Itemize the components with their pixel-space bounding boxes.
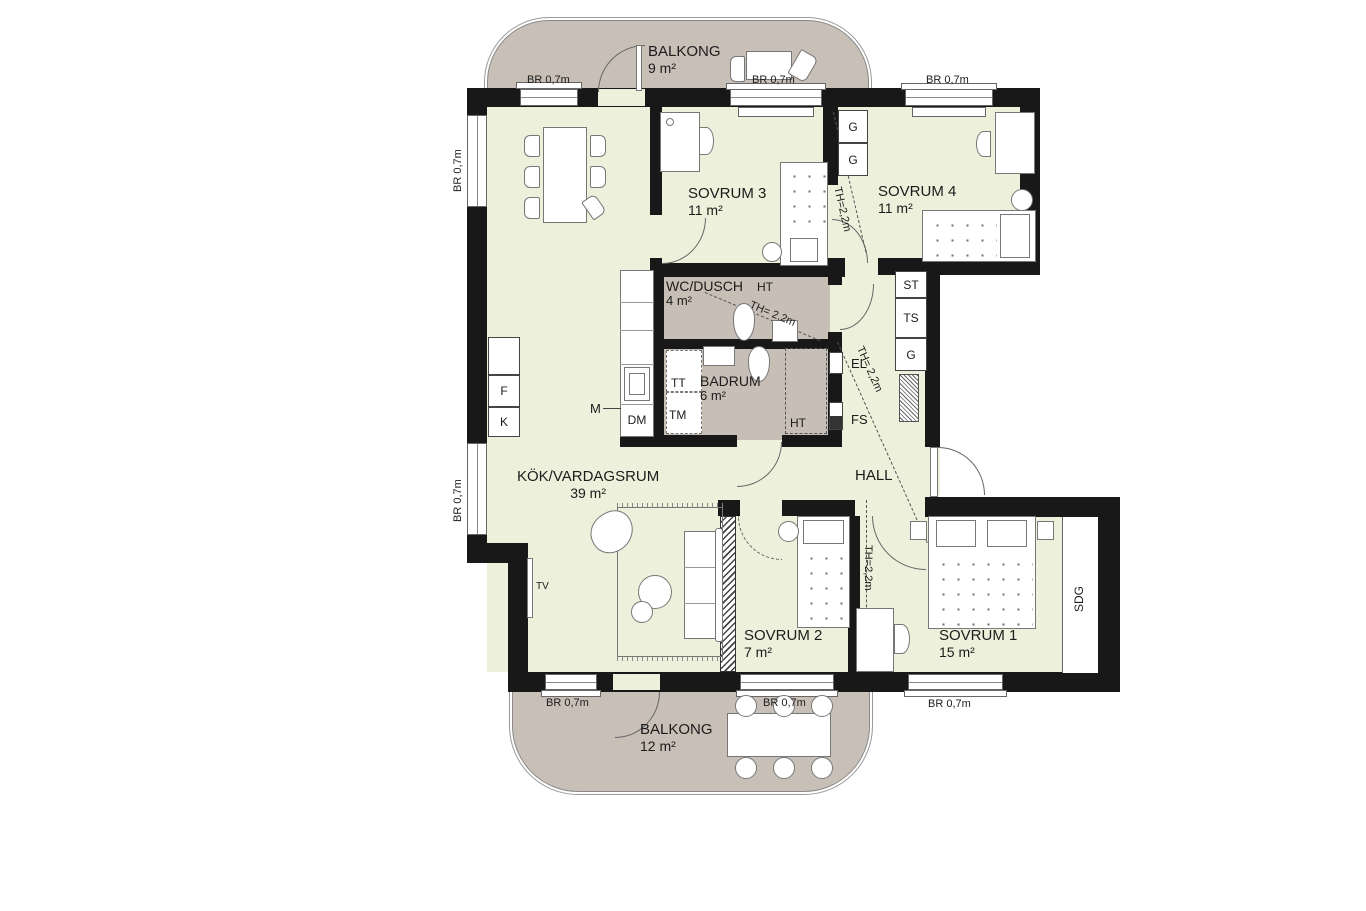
room-name: BALKONG [640,722,713,739]
balcony-door-opening [613,674,660,690]
wardrobe-label: G [906,348,915,362]
window-height-label: BR 0,7m [752,75,795,86]
room-name: SOVRUM 3 [688,186,766,203]
room-name: BALKONG [648,44,721,61]
desk-chair [976,131,991,157]
door-height-label: TH=2,2m [862,545,873,591]
chair [735,757,757,779]
chair [811,757,833,779]
chair [735,695,757,717]
window-inner-sill [738,107,814,117]
bed-foot [790,238,818,262]
ht-label: HT [757,281,773,293]
desk [856,608,894,672]
window-inner-sill [912,107,986,117]
room-name: SOVRUM 2 [744,628,822,645]
desk-chair [894,624,910,654]
freezer-label: K [500,415,508,429]
tv-label: TV [536,582,549,592]
dryer-label: TM [669,409,686,421]
electrical-cabinet [829,352,843,374]
el-label: EL [851,357,867,370]
chair [590,166,606,188]
bed-pillow [987,520,1027,547]
nightstand [910,521,927,540]
window-height-label: BR 0,7m [928,699,971,710]
window-sill [904,690,1007,697]
room-area: 39 m² [517,486,659,501]
microwave-label: M [590,402,601,415]
dishwasher: DM [621,406,653,434]
room-label-balkong-bottom: BALKONG 12 m² [640,722,713,754]
wardrobe: G [838,110,868,143]
window [740,674,834,690]
dishwasher-label: DM [628,413,647,427]
wall [782,500,855,516]
window [730,89,822,106]
basket [778,521,799,542]
room-label-hall: HALL [855,468,893,485]
chair [524,135,540,157]
drying-cabinet: TS [895,298,927,338]
cleaning-cabinet: ST [895,271,927,298]
room-area: 9 m² [648,61,721,76]
counter-divider [620,364,654,365]
room-area: 4 m² [666,294,743,308]
mattress [931,552,1033,626]
counter-divider [620,330,654,331]
window-height-label: BR 0,7m [546,698,589,709]
rug-fringe [617,657,723,661]
room-label-sovrum4: SOVRUM 4 11 m² [878,184,956,216]
window [905,89,993,106]
kitchen-sink-basin [629,373,645,395]
wall [925,275,940,447]
bed-pillow [1000,214,1030,258]
chair [524,166,540,188]
room-area: 7 m² [744,645,822,660]
fridge-label: F [500,384,507,398]
washer-label: TT [671,377,686,389]
room-area: 11 m² [688,203,766,218]
bed-pillow [936,520,976,547]
desk [995,112,1035,174]
desk-chair [699,127,714,155]
chair [590,135,606,157]
room-label-sovrum1: SOVRUM 1 15 m² [939,628,1017,660]
mattress [799,546,848,626]
counter-divider [620,302,654,303]
cabinet-label: TS [903,311,918,325]
freezer: K [488,407,520,437]
side-table [631,601,653,623]
window-sill [541,690,601,697]
room-label-balkong-top: BALKONG 9 m² [648,44,721,76]
wall [925,497,1120,517]
sofa [684,531,716,639]
window [545,674,597,690]
room-name: BADRUM [700,374,761,389]
distribution-box [829,402,843,430]
door-leaf [636,45,642,91]
basket [1011,189,1033,211]
wall [1098,517,1120,672]
mattress [925,213,997,259]
bathroom-sink [703,346,735,366]
window [908,674,1003,690]
window-height-label: BR 0,7m [926,75,969,86]
room-area: 6 m² [700,389,761,403]
room-area: 12 m² [640,739,713,754]
window-height-label: BR 0,7m [453,479,464,522]
chair [524,197,540,219]
room-label-sovrum3: SOVRUM 3 11 m² [688,186,766,218]
chair [773,757,795,779]
entrance-door-leaf [930,447,938,497]
room-name: KÖK/VARDAGSRUM [517,469,659,486]
window-height-label: BR 0,7m [763,698,806,709]
counter-divider [620,404,654,405]
desk-lamp [666,118,674,126]
window [467,115,487,207]
wardrobe: G [838,143,868,176]
balcony-table [727,713,831,757]
room-name: WC/DUSCH [666,279,743,294]
nightstand [1037,521,1054,540]
door-arc-entrance [938,447,985,495]
window [467,443,487,535]
wardrobe-label: G [848,120,857,134]
room-label-wc: WC/DUSCH 4 m² [666,279,743,309]
radiator [899,374,919,422]
room-label-kok: KÖK/VARDAGSRUM 39 m² [517,469,659,501]
bed-pillow [803,520,844,544]
floor-plan: DM M F K TV G G [0,0,1366,911]
wall [508,563,528,675]
wall [467,543,528,563]
window [520,89,578,106]
room-label-sovrum2: SOVRUM 2 7 m² [744,628,822,660]
dining-table [543,127,587,223]
sdg-label: SDG [1073,586,1085,612]
mattress [782,164,826,230]
tv-unit [527,558,533,618]
fridge: F [488,375,520,407]
room-area: 11 m² [878,201,956,216]
ht-label: HT [790,417,806,429]
sofa-back [715,528,723,642]
basket [762,242,782,262]
window-height-label: BR 0,7m [527,75,570,86]
wardrobe-label: G [848,153,857,167]
room-name: SOVRUM 4 [878,184,956,201]
window-height-label: BR 0,7m [453,149,464,192]
sofa-cushion-line [684,567,716,568]
chair [811,695,833,717]
room-name: SOVRUM 1 [939,628,1017,645]
room-area: 15 m² [939,645,1017,660]
tall-cabinet [488,337,520,375]
sofa-cushion-line [684,603,716,604]
cabinet-label: ST [903,278,918,292]
wardrobe: G [895,338,927,371]
leader-line [603,408,621,409]
fs-label: FS [851,413,868,426]
room-label-badrum: BADRUM 6 m² [700,374,761,404]
chair [730,56,745,82]
